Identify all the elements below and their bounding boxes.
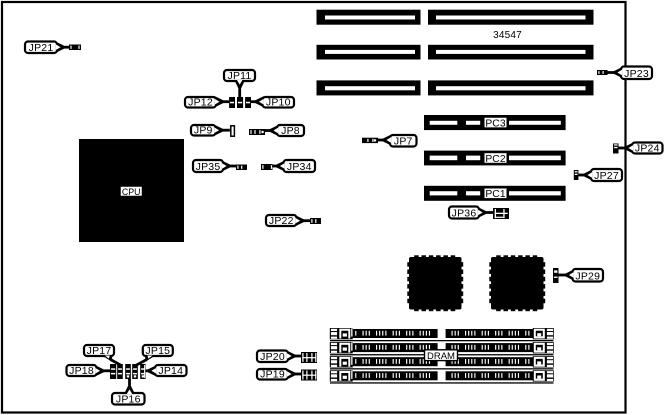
svg-text:JP7: JP7 (394, 135, 413, 147)
svg-text:JP34: JP34 (287, 161, 312, 173)
svg-text:JP8: JP8 (281, 125, 300, 137)
svg-text:JP19: JP19 (260, 368, 285, 380)
svg-text:JP24: JP24 (635, 142, 660, 154)
svg-text:JP14: JP14 (158, 365, 183, 377)
svg-text:JP15: JP15 (145, 345, 170, 357)
svg-text:DRAM: DRAM (427, 351, 455, 362)
svg-text:JP17: JP17 (87, 345, 112, 357)
svg-text:JP12: JP12 (188, 96, 213, 108)
svg-text:JP18: JP18 (69, 365, 94, 377)
svg-text:JP10: JP10 (266, 96, 291, 108)
svg-text:PC1: PC1 (485, 189, 506, 200)
svg-text:PC3: PC3 (485, 118, 506, 129)
svg-text:JP35: JP35 (196, 161, 221, 173)
svg-text:PC2: PC2 (485, 154, 506, 165)
svg-text:JP23: JP23 (624, 68, 649, 80)
svg-text:JP16: JP16 (116, 393, 141, 405)
svg-text:JP21: JP21 (29, 42, 54, 54)
svg-text:34547: 34547 (493, 30, 522, 41)
svg-text:JP27: JP27 (594, 170, 619, 182)
svg-text:JP20: JP20 (260, 351, 285, 363)
svg-text:CPU: CPU (122, 187, 141, 197)
svg-text:JP9: JP9 (194, 124, 213, 136)
svg-text:JP22: JP22 (269, 215, 294, 227)
svg-text:JP36: JP36 (452, 207, 477, 219)
svg-text:JP29: JP29 (575, 270, 600, 282)
